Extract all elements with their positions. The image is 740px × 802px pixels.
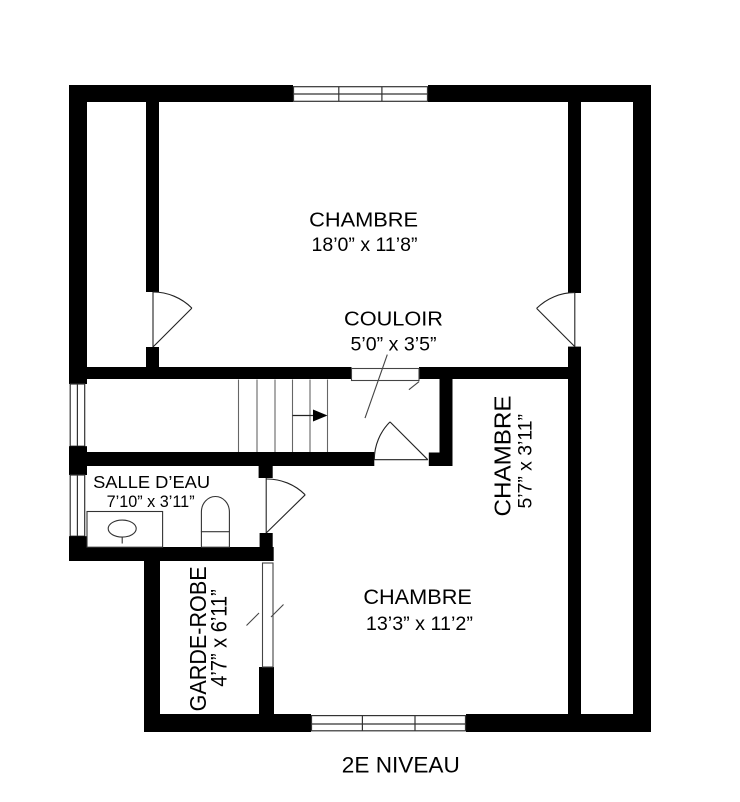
svg-text:CHAMBRE: CHAMBRE xyxy=(309,209,418,232)
svg-text:2E NIVEAU: 2E NIVEAU xyxy=(342,753,460,778)
svg-text:CHAMBRE: CHAMBRE xyxy=(490,395,516,516)
svg-text:4’7” x 6’11”: 4’7” x 6’11” xyxy=(206,589,231,687)
svg-text:CHAMBRE: CHAMBRE xyxy=(363,586,472,609)
svg-text:5’0” x 3’5”: 5’0” x 3’5” xyxy=(351,334,437,356)
svg-text:COULOIR: COULOIR xyxy=(344,309,443,331)
svg-text:18’0” x 11’8”: 18’0” x 11’8” xyxy=(312,234,418,256)
svg-text:7’10” x 3’11”: 7’10” x 3’11” xyxy=(107,492,195,511)
svg-text:SALLE D’EAU: SALLE D’EAU xyxy=(93,472,210,492)
svg-text:5’7” x 3’11”: 5’7” x 3’11” xyxy=(515,414,537,509)
svg-text:13’3” x 11’2”: 13’3” x 11’2” xyxy=(366,613,473,635)
